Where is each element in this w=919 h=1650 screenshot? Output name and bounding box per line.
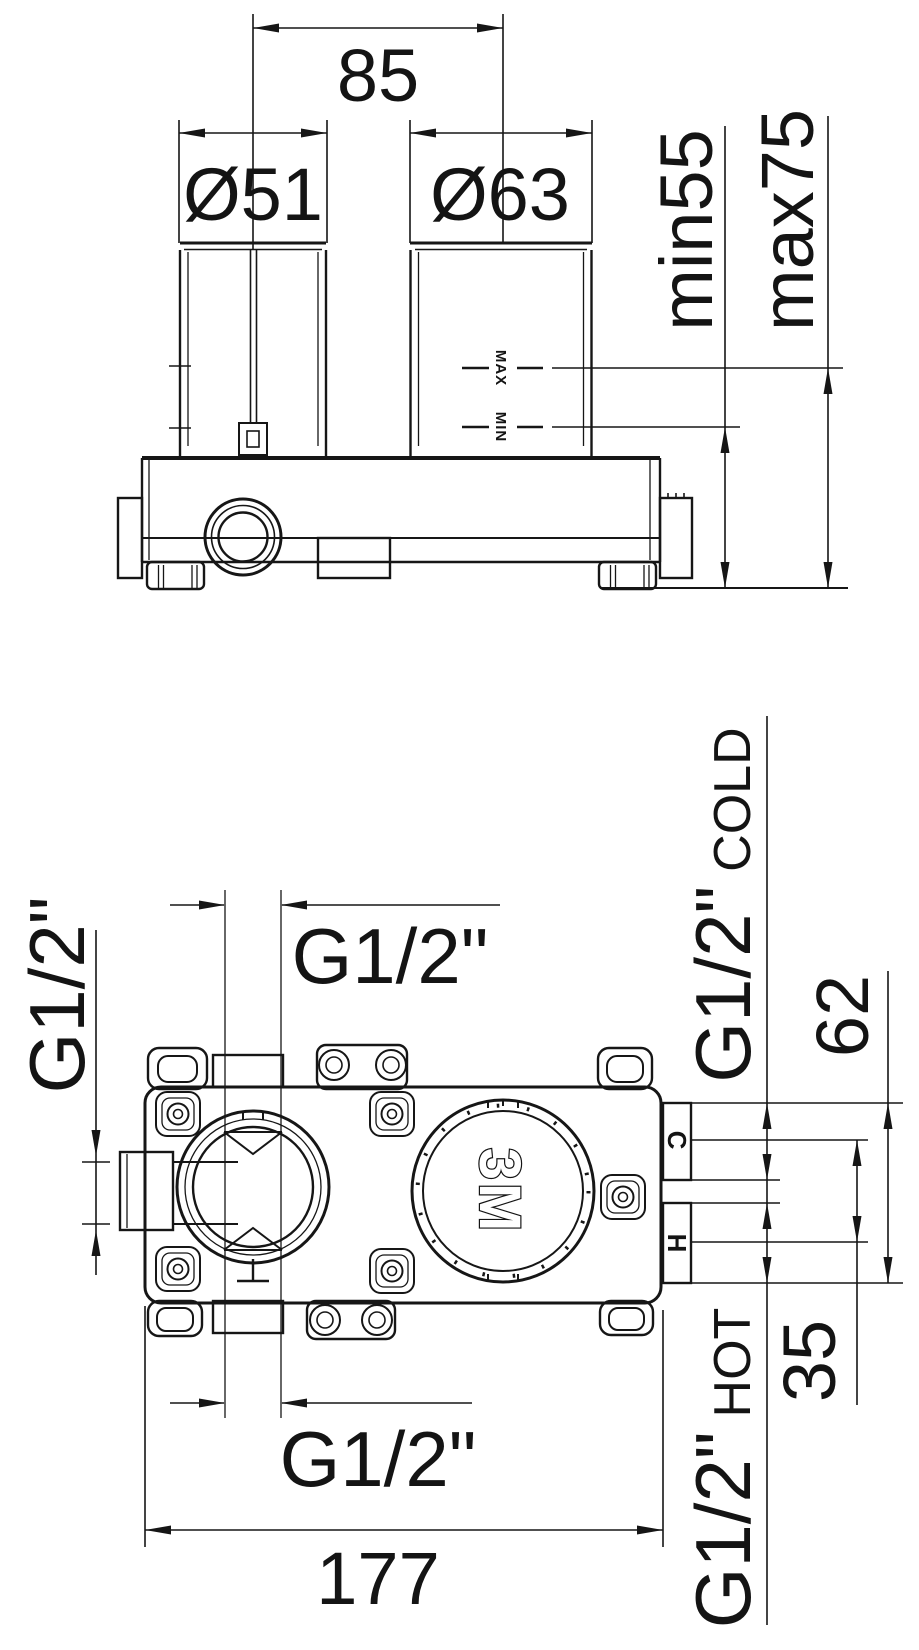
cartridge-top-chevron: [224, 1132, 282, 1154]
dim-bottom-thread-label: G1/2": [280, 1415, 477, 1503]
lug-top-left: [148, 1048, 207, 1089]
dim-cold-inlet: G1/2"COLD G1/2"HOT: [679, 716, 772, 1628]
hot-inlet-port: H: [662, 1203, 692, 1283]
boss-top-left: [156, 1092, 200, 1136]
front-left-sleeve: [169, 243, 326, 458]
cartridge-circle-right: 3M: [412, 1099, 594, 1282]
front-valve-body: [118, 458, 692, 589]
dim-bottom-outlet-thread: G1/2": [170, 1399, 476, 1504]
dim-min55-label: min55: [645, 129, 728, 331]
dim-85-label: 85: [337, 34, 419, 117]
dim-left-outlet-thread: G1/2": [13, 897, 110, 1275]
lug-top-right: [598, 1048, 652, 1089]
bottom-outlet-stub: [213, 1301, 283, 1333]
technical-drawing-page: MAX MIN: [0, 0, 919, 1650]
dim-depth-max75: max75: [746, 109, 833, 588]
dim-diameter-63: Ø63: [410, 120, 592, 243]
front-left-foot: [147, 562, 204, 589]
boss-bottom-left: [156, 1247, 200, 1291]
max-label: MAX: [492, 350, 509, 386]
boss-bottom-middle: [370, 1249, 414, 1293]
min-level-marker: MIN: [462, 412, 740, 443]
dim-top-thread-label: G1/2": [292, 912, 489, 1000]
hot-port-letter: H: [662, 1234, 692, 1253]
dim-left-thread-label: G1/2": [13, 897, 101, 1094]
dim-35-label: 35: [768, 1320, 851, 1402]
valve-installation-drawing: MAX MIN: [0, 0, 919, 1650]
lug-bottom-middle: [307, 1301, 395, 1339]
screw-bosses: [156, 1092, 645, 1293]
inlet-reference-lines: [691, 1103, 903, 1283]
dim-depth-min55: min55: [645, 126, 730, 588]
front-center-block: [318, 538, 390, 578]
min-label: MIN: [492, 412, 509, 443]
front-view: MAX MIN: [118, 14, 848, 589]
boss-right: [601, 1175, 645, 1219]
left-outlet-port: [120, 1152, 238, 1230]
front-left-tab: [118, 498, 142, 578]
hot-inlet-label: G1/2"HOT: [679, 1308, 767, 1629]
spindle-foot: [239, 423, 267, 455]
logo-3m: 3M: [467, 1148, 532, 1235]
dim-177-label: 177: [316, 1537, 439, 1620]
max-level-marker: MAX: [462, 350, 843, 386]
front-right-stub: [660, 498, 692, 578]
cold-port-letter: C: [662, 1131, 692, 1150]
dim-top-outlet-thread: G1/2": [170, 901, 500, 1001]
lug-top-middle: [317, 1045, 407, 1089]
dim-inlet-span-62: 62: [801, 971, 893, 1283]
dim-max75-label: max75: [746, 109, 829, 331]
dim-62-label: 62: [801, 975, 884, 1057]
cold-inlet-label: G1/2"COLD: [679, 727, 767, 1082]
front-right-foot: [599, 562, 656, 589]
lug-bottom-left: [148, 1301, 202, 1336]
lug-bottom-right: [600, 1301, 653, 1335]
dim-51-label: Ø51: [183, 153, 323, 236]
dim-inlet-centers-35: 35: [768, 1140, 862, 1405]
top-outlet-stub: [213, 1055, 283, 1087]
dim-63-label: Ø63: [430, 153, 570, 236]
plan-view: C H: [13, 716, 903, 1628]
cold-inlet-port: C: [662, 1103, 692, 1180]
boss-top-middle: [370, 1092, 414, 1136]
